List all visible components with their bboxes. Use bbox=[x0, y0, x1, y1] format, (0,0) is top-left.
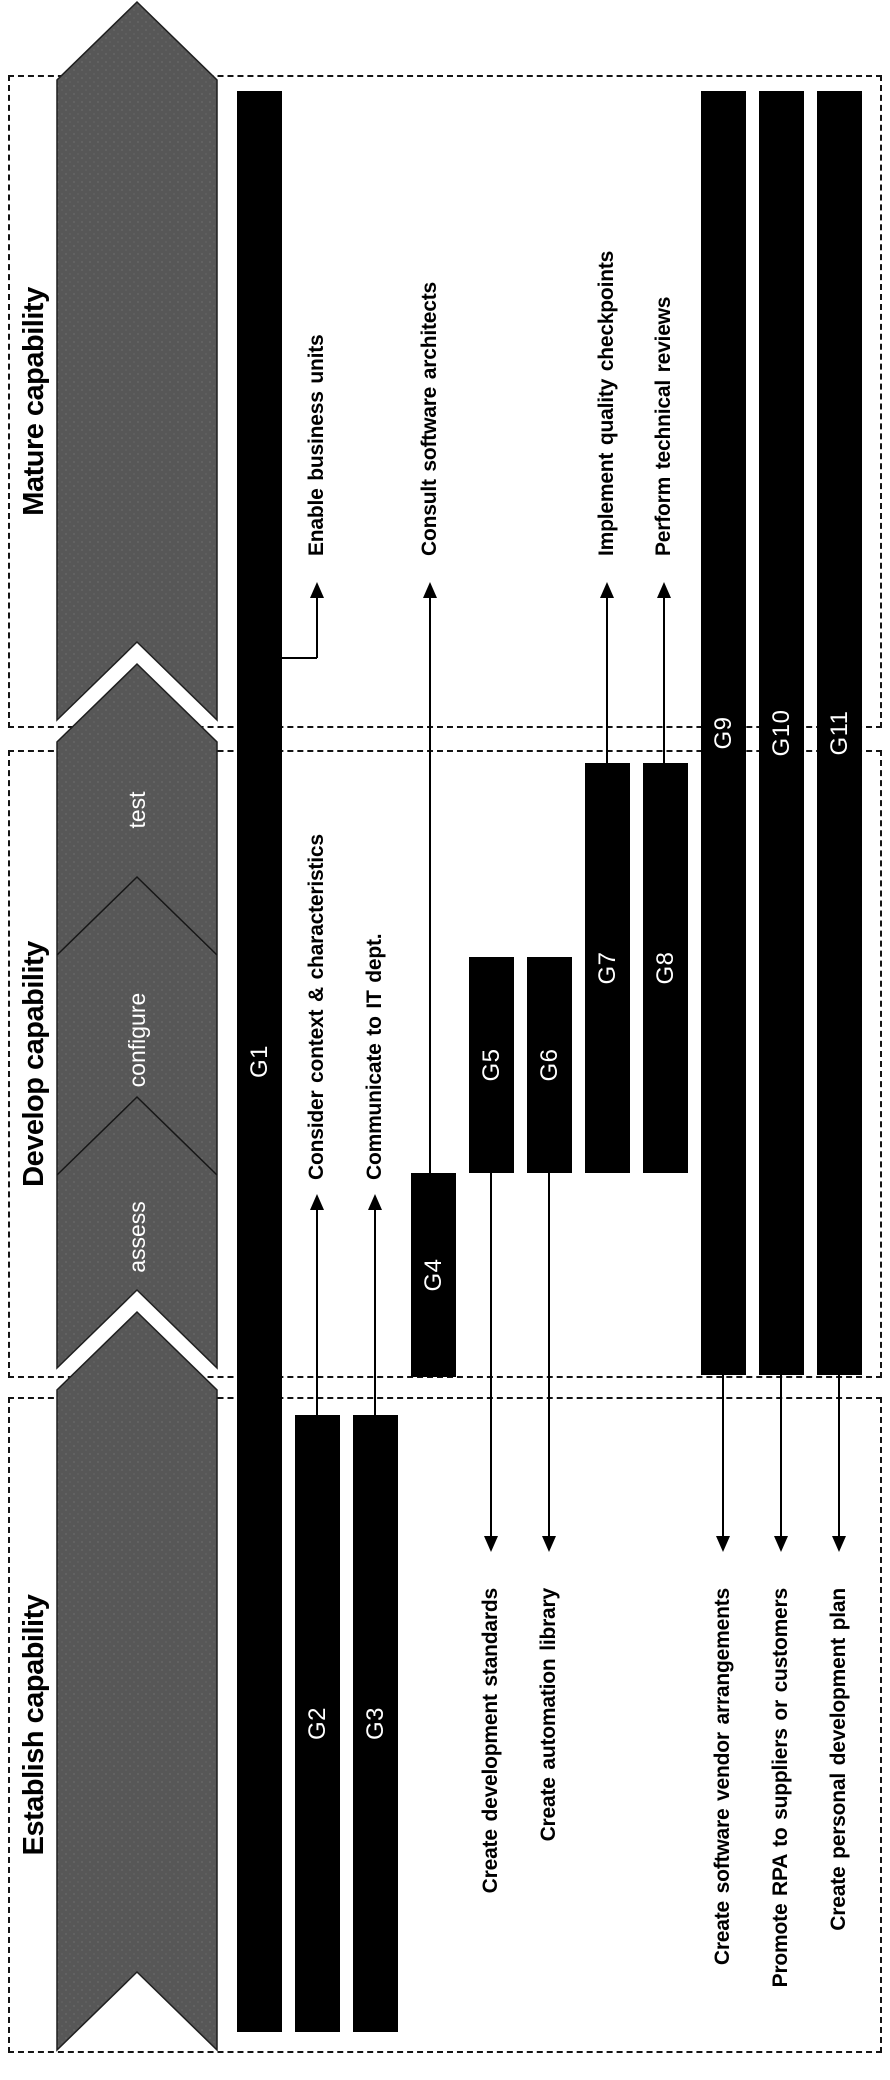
annotation-arrow-create-development-standards bbox=[484, 1173, 498, 1552]
phase-arrow-establish bbox=[57, 1312, 217, 2050]
guideline-bar-label-g6: G6 bbox=[536, 1049, 564, 1082]
annotation-text-enable-business-units: Enable business units bbox=[302, 334, 332, 556]
guideline-bar-label-g3: G3 bbox=[362, 1707, 390, 1740]
annotation-text-create-software-vendor-arrangements: Create software vendor arrangements bbox=[708, 1588, 738, 1965]
guideline-bar-label-g4: G4 bbox=[420, 1259, 448, 1292]
annotation-arrow-create-automation-library bbox=[542, 1173, 556, 1552]
annotation-arrow-enable-business-units bbox=[282, 582, 324, 658]
guideline-bar-g9: G9 bbox=[701, 91, 746, 1375]
annotation-arrow-promote-rpa-to-suppliers-or-customers bbox=[774, 1375, 788, 1552]
guideline-bar-g7: G7 bbox=[585, 763, 630, 1173]
guideline-bar-g1: G1 bbox=[237, 91, 282, 2032]
rpa-capability-roadmap-diagram: Establish capability Develop capability … bbox=[0, 0, 890, 2080]
annotation-arrow-create-software-vendor-arrangements bbox=[716, 1375, 730, 1552]
annotation-text-implement-quality-checkpoints: Implement quality checkpoints bbox=[592, 251, 622, 556]
guideline-bar-g3: G3 bbox=[353, 1415, 398, 2032]
annotation-arrow-consider-context-characteristics bbox=[310, 1194, 324, 1415]
annotation-text-promote-rpa-to-suppliers-or-customers: Promote RPA to suppliers or customers bbox=[766, 1588, 796, 1987]
subphase-label-test: test bbox=[122, 745, 152, 875]
guideline-bar-label-g10: G10 bbox=[768, 710, 796, 757]
subphase-label-assess: assess bbox=[122, 1172, 152, 1302]
guideline-bar-g5: G5 bbox=[469, 957, 514, 1173]
annotation-text-perform-technical-reviews: Perform technical reviews bbox=[649, 297, 679, 556]
diagram-viewport: Establish capability Develop capability … bbox=[0, 0, 890, 2080]
annotation-arrow-create-personal-development-plan bbox=[832, 1375, 846, 1552]
annotation-text-consider-context-characteristics: Consider context & characteristics bbox=[302, 834, 332, 1180]
phase-arrow-mature bbox=[57, 2, 217, 720]
annotation-arrow-consult-software-architects bbox=[423, 582, 437, 1173]
annotation-text-create-personal-development-plan: Create personal development plan bbox=[824, 1588, 854, 1931]
annotation-arrow-perform-technical-reviews bbox=[657, 582, 671, 763]
guideline-bar-label-g2: G2 bbox=[304, 1707, 332, 1740]
guideline-bar-g8: G8 bbox=[643, 763, 688, 1173]
guideline-bar-g10: G10 bbox=[759, 91, 804, 1375]
guideline-bar-label-g7: G7 bbox=[594, 952, 622, 985]
guideline-bar-label-g8: G8 bbox=[652, 952, 680, 985]
annotation-text-consult-software-architects: Consult software architects bbox=[415, 282, 445, 556]
annotation-text-communicate-to-it-dept: Communicate to IT dept. bbox=[360, 934, 390, 1180]
annotation-arrow-implement-quality-checkpoints bbox=[600, 582, 614, 763]
guideline-bar-g2: G2 bbox=[295, 1415, 340, 2032]
guideline-bar-g11: G11 bbox=[817, 91, 862, 1375]
annotation-text-create-automation-library: Create automation library bbox=[534, 1588, 564, 1841]
guideline-bar-label-g9: G9 bbox=[710, 717, 738, 750]
guideline-bar-label-g11: G11 bbox=[826, 710, 854, 755]
guideline-bar-g6: G6 bbox=[527, 957, 572, 1173]
annotation-arrow-communicate-to-it-dept bbox=[368, 1194, 382, 1415]
guideline-bar-label-g1: G1 bbox=[246, 1045, 274, 1078]
subphase-label-configure: configure bbox=[122, 958, 152, 1122]
guideline-bar-g4: G4 bbox=[411, 1173, 456, 1377]
guideline-bar-label-g5: G5 bbox=[478, 1049, 506, 1082]
annotation-text-create-development-standards: Create development standards bbox=[476, 1588, 506, 1893]
